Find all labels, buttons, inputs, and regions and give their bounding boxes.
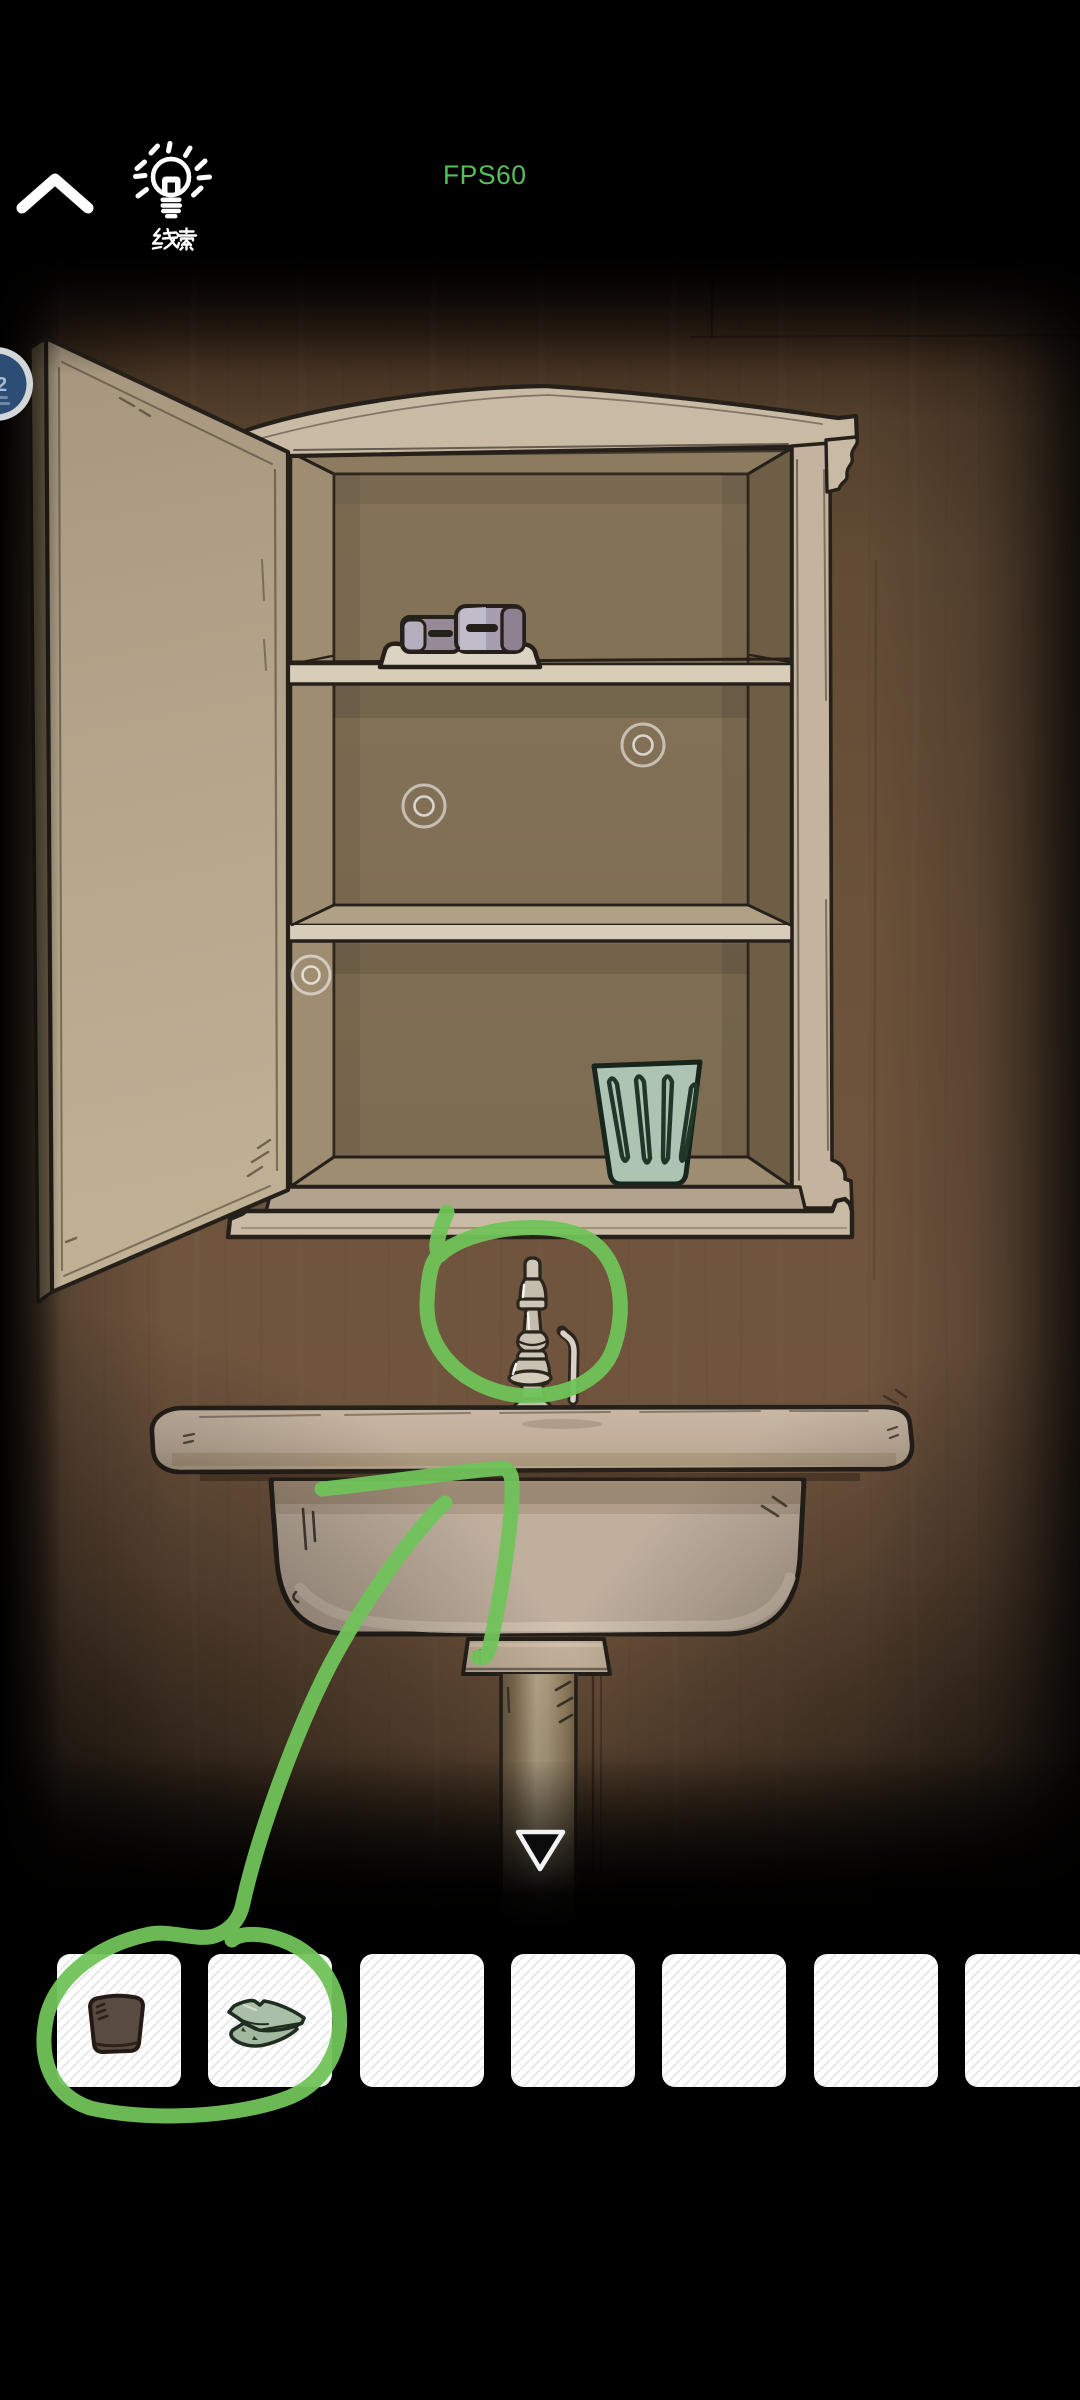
svg-text:22: 22 bbox=[0, 374, 7, 396]
svg-text:FPS60: FPS60 bbox=[443, 160, 527, 190]
